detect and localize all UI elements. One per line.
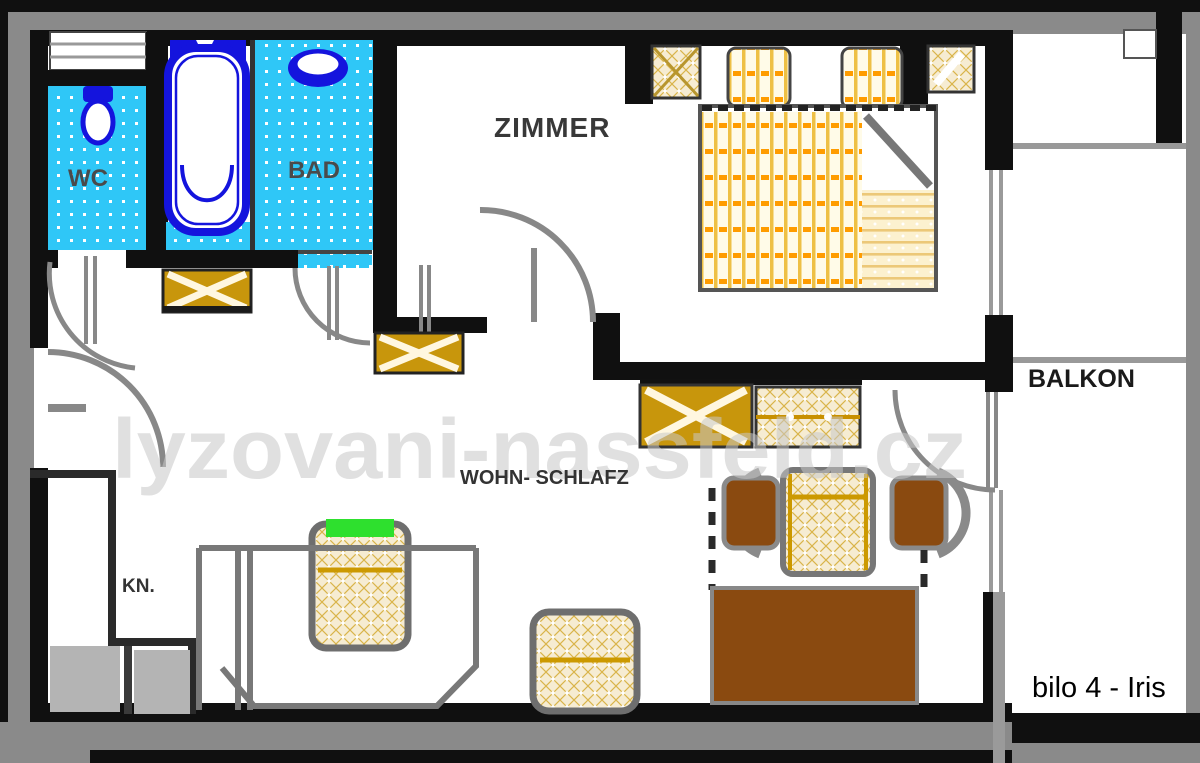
wall-kn-horizontal [108,638,196,646]
armchair [312,519,408,648]
pillow-left [728,48,790,106]
pouf [533,612,637,711]
bad-door-arc [295,268,370,343]
zimmer-radiator-line [419,265,423,333]
wc-door-leaf2 [93,256,97,344]
toilet-bowl [83,101,113,143]
armchair-seat [312,524,408,648]
outer-wall-bottom [0,722,1012,750]
kitchen-counter-left [50,646,120,712]
wall-entry-nook [30,470,112,478]
unit-caption: bilo 4 - Iris [1032,672,1166,704]
toilet [83,86,113,143]
sofa-bed [712,588,917,703]
floor-plan: lyzovani-nassfeld.cz WC BAD ZIMMER BALKO… [0,0,1200,763]
zimmer-radiator-line2 [427,265,431,333]
wall-wc-top [48,70,148,86]
outer-bottom-left [0,750,90,763]
balkon-door-leaf2 [994,392,998,488]
window-topright [1124,30,1156,58]
floor-plan-drawing: lyzovani-nassfeld.cz WC BAD ZIMMER BALKO… [0,0,1200,763]
pillow-right [842,48,902,108]
room-label-wohn-schlafz: WOHN- SCHLAFZ [460,467,629,489]
window-wohn-balkon2 [999,490,1003,592]
dresser-corridor [375,333,463,373]
sink [288,49,348,87]
balkon-door-leaf [986,392,990,488]
balcony-railing [993,592,1005,763]
dresser-hall-base [163,306,251,312]
entrance-door-leaf [48,404,86,412]
kitchen-counters [50,646,190,714]
room-label-wc: WC [68,165,108,192]
double-bed [700,106,936,290]
outer-wall-top-edge [0,0,1200,12]
zimmer-door-leaf [531,248,537,322]
wc-door-leaf [84,256,88,344]
window-wohn-balkon [989,490,993,592]
sink-basin [296,52,340,76]
bed-duvet [702,112,862,288]
balcony-bottom-band [1012,743,1200,763]
tile-divider [250,40,255,250]
window-zimmer-balkon2 [999,170,1003,315]
bad-door [295,266,370,343]
headboard-stub-right [900,46,928,104]
nightstand-left [652,46,700,98]
room-label-balkon: BALKON [1028,365,1135,393]
window-wc [50,32,146,70]
room-label-bad: BAD [288,157,340,184]
wall-right-upper [985,30,1013,170]
nightstand-right [928,46,974,92]
room-label-zimmer: ZIMMER [494,112,610,143]
balcony-bottom-wall [1012,713,1200,743]
wall-left-lower [30,468,48,703]
armchair-headrest [326,519,394,537]
headboard-stub-left [625,46,653,104]
window-zimmer-balkon [989,170,993,315]
bedroom-furniture [625,46,974,290]
wall-left-upper [30,30,48,348]
zimmer-door [419,210,593,333]
kitchen-counter-right [134,650,190,714]
wall-corridor [126,250,298,268]
balcony-elements [989,143,1186,763]
room-label-kn: KN. [122,576,155,597]
outer-wall-right [1186,12,1200,750]
wall-zimmer-left [373,30,397,333]
wall-right-mid [985,315,1013,392]
outer-wall-left-edge [0,0,8,735]
building-pillar-topright [1156,0,1182,148]
bed-blanket-foot [862,190,934,288]
balcony-partition-upper [1013,143,1186,149]
dresser-hall [163,270,251,312]
wall-wc-bottom-stub [30,250,58,268]
balcony-partition-lower [1013,357,1186,363]
bathtub-rim [168,48,246,232]
bad-door-threshold [298,254,372,268]
kitchen-counter-divider [124,646,132,714]
bathtub [168,40,246,232]
outer-bottom-edge [90,750,1012,763]
bad-door-leaf2 [335,266,339,340]
wall-zimmer-bottom [612,362,992,380]
wall-kn-vertical [108,470,116,646]
